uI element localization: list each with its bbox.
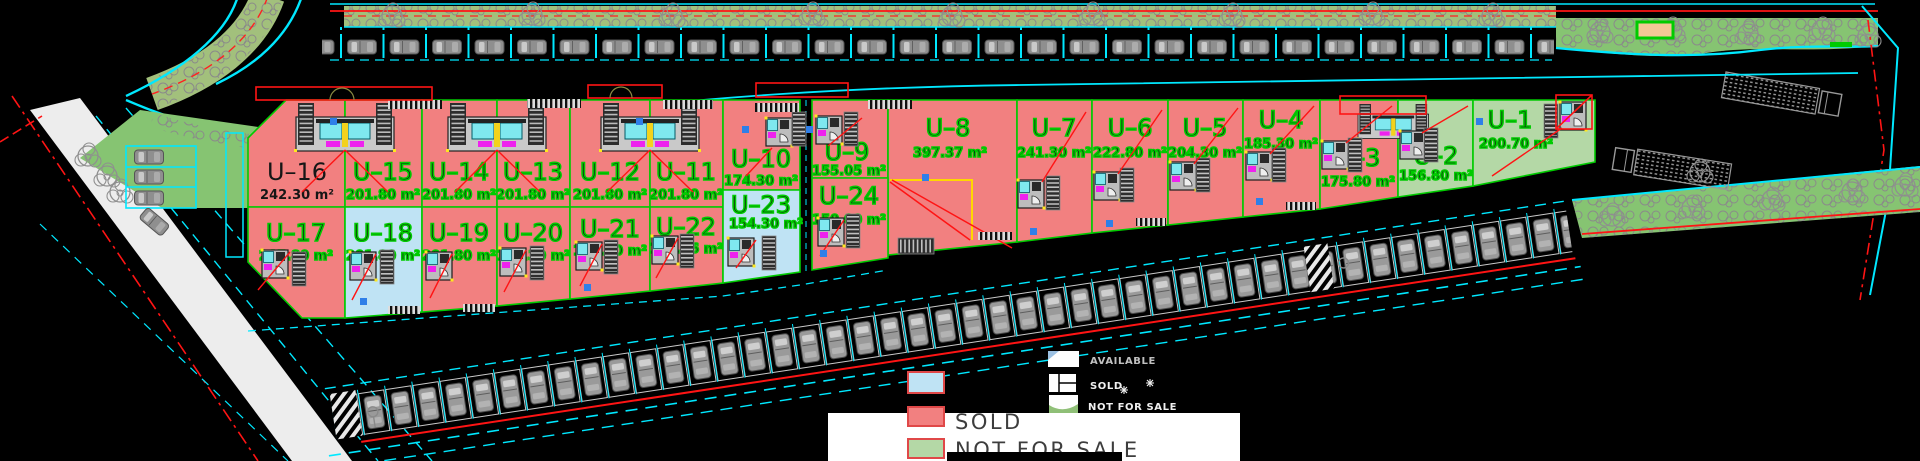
- svg-text:155.05 m²: 155.05 m²: [812, 164, 886, 179]
- svg-text:154.30 m²: 154.30 m²: [729, 217, 803, 232]
- svg-text:U–17: U–17: [266, 219, 326, 247]
- svg-text:U–19: U–19: [429, 219, 489, 247]
- svg-text:U–4: U–4: [1259, 106, 1304, 134]
- svg-text:U–21: U–21: [580, 215, 640, 243]
- svg-text:U–11: U–11: [656, 158, 716, 186]
- svg-text:U–6: U–6: [1108, 114, 1153, 142]
- svg-text:241.30 m²: 241.30 m²: [1017, 146, 1091, 161]
- svg-text:222.80 m²: 222.80 m²: [1093, 146, 1167, 161]
- svg-text:201.80 m²: 201.80 m²: [346, 188, 420, 203]
- svg-text:201.80 m²: 201.80 m²: [649, 188, 723, 203]
- svg-text:U–5: U–5: [1183, 114, 1228, 142]
- car-icon: [135, 150, 164, 164]
- legend-small-label-available: AVAILABLE: [1090, 356, 1156, 367]
- legend-swatch-available: [908, 372, 944, 393]
- svg-text:156.80 m²: 156.80 m²: [1399, 169, 1473, 184]
- site-plan-canvas: U–16 242.30 m² U–15 201.80 m² U–14 201.8…: [0, 0, 1920, 461]
- legend-swatch-not-for-sale: [908, 439, 944, 458]
- svg-text:175.80 m²: 175.80 m²: [1321, 175, 1395, 190]
- site-plan-drawing: U–16 242.30 m² U–15 201.80 m² U–14 201.8…: [0, 0, 1920, 461]
- svg-text:U–8: U–8: [926, 114, 971, 142]
- svg-text:201.80 m²: 201.80 m²: [496, 188, 570, 203]
- legend-swatch-sold: [908, 407, 944, 426]
- unit-u6[interactable]: U–6 222.80 m²: [1092, 100, 1168, 233]
- legend-small-label-not-for-sale: NOT FOR SALE: [1088, 402, 1177, 413]
- legend-label-sold: SOLD: [955, 410, 1023, 434]
- svg-text:U–24: U–24: [819, 182, 879, 210]
- svg-text:U–20: U–20: [503, 219, 563, 247]
- svg-text:U–12: U–12: [580, 158, 640, 186]
- svg-text:201.80 m²: 201.80 m²: [422, 188, 496, 203]
- svg-text:U–1: U–1: [1488, 106, 1533, 134]
- kiosk-structure: [1637, 22, 1673, 38]
- svg-text:U–15: U–15: [353, 158, 413, 186]
- svg-text:U–23: U–23: [731, 191, 791, 219]
- unit-area: 242.30 m²: [260, 188, 334, 203]
- svg-text:200.70 m²: 200.70 m²: [1479, 137, 1553, 152]
- legend-overlay-bar: [947, 452, 1122, 461]
- svg-text:397.37 m²: 397.37 m²: [913, 146, 987, 161]
- svg-text:U–14: U–14: [429, 158, 489, 186]
- svg-text:U–13: U–13: [503, 158, 563, 186]
- legend-small-label-sold: SOLD: [1090, 381, 1123, 392]
- unit-u8[interactable]: U–8 397.37 m²: [888, 100, 1017, 255]
- svg-text:174.30 m²: 174.30 m²: [724, 174, 798, 189]
- unit-label: U–16: [267, 158, 327, 186]
- svg-text:U–18: U–18: [353, 219, 413, 247]
- svg-text:201.80 m²: 201.80 m²: [573, 188, 647, 203]
